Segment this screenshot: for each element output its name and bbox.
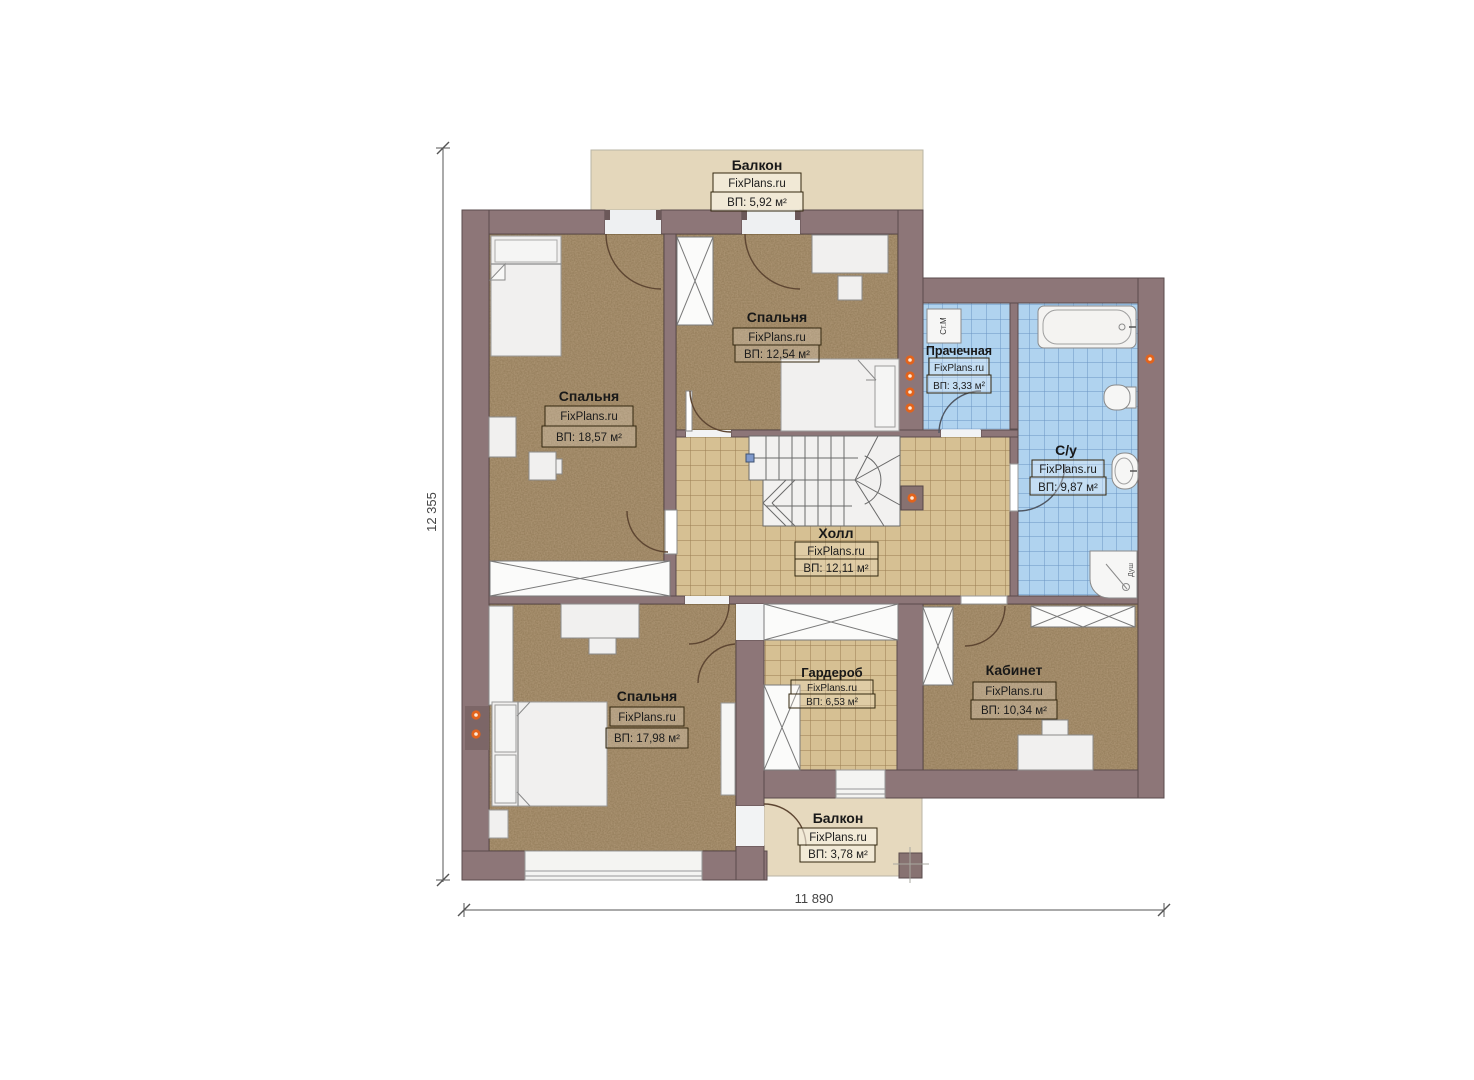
svg-text:Гардероб: Гардероб [801,665,862,680]
svg-text:ВП: 9,87 м²: ВП: 9,87 м² [1038,482,1098,494]
svg-text:С/у: С/у [1055,442,1077,458]
svg-text:12 355: 12 355 [424,492,439,532]
svg-text:Кабинет: Кабинет [986,662,1043,678]
svg-text:FixPlans.ru: FixPlans.ru [807,683,857,694]
svg-text:Холл: Холл [818,525,853,541]
svg-text:FixPlans.ru: FixPlans.ru [728,178,786,190]
svg-text:FixPlans.ru: FixPlans.ru [748,332,806,344]
svg-text:ВП: 6,53 м²: ВП: 6,53 м² [806,697,859,708]
svg-text:ВП: 12,11 м²: ВП: 12,11 м² [803,563,868,575]
svg-text:ВП: 3,33 м²: ВП: 3,33 м² [933,381,986,392]
svg-text:11 890: 11 890 [795,891,834,906]
svg-text:Спальня: Спальня [617,688,677,704]
svg-text:ВП: 10,34 м²: ВП: 10,34 м² [981,705,1047,717]
svg-text:Ст.М: Ст.М [939,317,948,335]
svg-text:ВП: 12,54 м²: ВП: 12,54 м² [744,349,810,361]
svg-text:ВП: 18,57 м²: ВП: 18,57 м² [556,432,622,444]
svg-text:FixPlans.ru: FixPlans.ru [807,546,865,558]
svg-text:FixPlans.ru: FixPlans.ru [1039,464,1097,476]
svg-text:FixPlans.ru: FixPlans.ru [985,686,1043,698]
svg-text:FixPlans.ru: FixPlans.ru [809,832,867,844]
svg-text:ВП: 3,78 м²: ВП: 3,78 м² [808,849,868,861]
svg-text:Спальня: Спальня [559,388,619,404]
svg-text:Балкон: Балкон [813,810,864,826]
svg-text:Балкон: Балкон [732,157,783,173]
svg-text:ВП: 17,98 м²: ВП: 17,98 м² [614,733,680,745]
svg-text:FixPlans.ru: FixPlans.ru [560,411,618,423]
svg-text:FixPlans.ru: FixPlans.ru [934,363,984,374]
svg-text:Спальня: Спальня [747,309,807,325]
svg-text:FixPlans.ru: FixPlans.ru [618,712,676,724]
svg-text:ВП: 5,92 м²: ВП: 5,92 м² [727,197,787,209]
svg-text:Душ: Душ [1128,563,1135,577]
svg-text:Прачечная: Прачечная [926,344,992,358]
